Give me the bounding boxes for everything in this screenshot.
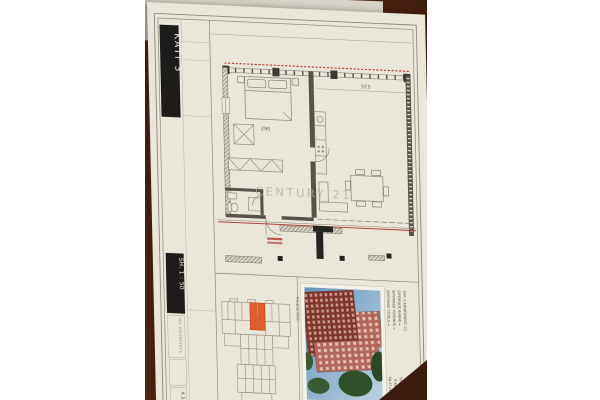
photo-building-low (314, 339, 381, 372)
sheet-number: A 3.8 (179, 391, 185, 400)
column (278, 256, 283, 261)
firm-label: IGY ARCHITECTS (178, 318, 183, 354)
caption-line: SIPERFAQE TOTALE = (386, 290, 391, 327)
title-block: KATI 3 SH. 1 : 50 IGY ARCHITECTS A 3.8 (159, 25, 190, 400)
wardrobe (228, 158, 282, 172)
watermark: CENTURY 21 (255, 184, 352, 202)
toilet-tank (228, 203, 231, 212)
drawing-sheet: KATI 3 SH. 1 : 50 IGY ARCHITECTS A 3.8 (147, 2, 427, 400)
kitchen (314, 112, 326, 175)
building-photo (299, 283, 388, 400)
bed (238, 76, 300, 121)
document-photo: KATI 3 SH. 1 : 50 IGY ARCHITECTS A 3.8 (145, 0, 427, 400)
floor-plan: 290 (214, 63, 417, 271)
key-plan (222, 298, 292, 400)
position-label: POZICIONI (295, 297, 301, 323)
closet (234, 124, 254, 145)
nightstand (238, 76, 245, 83)
caption-block: KATI 3 APARTAMENTI 11 SIPERFAQE BANIMI =… (386, 290, 409, 394)
caption-line: KATI 3 APARTAMENTI 11 (402, 291, 407, 332)
east-wall (405, 76, 414, 236)
toilet (231, 203, 238, 212)
dim-living: 373 (361, 84, 371, 90)
dim-bedroom: 290 (261, 126, 271, 132)
scale-label: SH. 1 : 50 (177, 257, 184, 290)
corridor (218, 220, 417, 271)
living-terrace-line (317, 219, 409, 223)
core-wall (313, 226, 333, 233)
sheet-svg: KATI 3 SH. 1 : 50 IGY ARCHITECTS A 3.8 (147, 2, 427, 400)
column (386, 253, 391, 258)
nightstand (292, 79, 299, 86)
caption-line: SIPERFAQE BANIMI = (397, 290, 402, 326)
core-stem (316, 232, 324, 259)
column (340, 256, 345, 261)
caption-line: SIPERFAQE VERANDE = (391, 290, 396, 330)
floor-label: KATI 3 (172, 33, 183, 73)
sink (228, 193, 237, 199)
